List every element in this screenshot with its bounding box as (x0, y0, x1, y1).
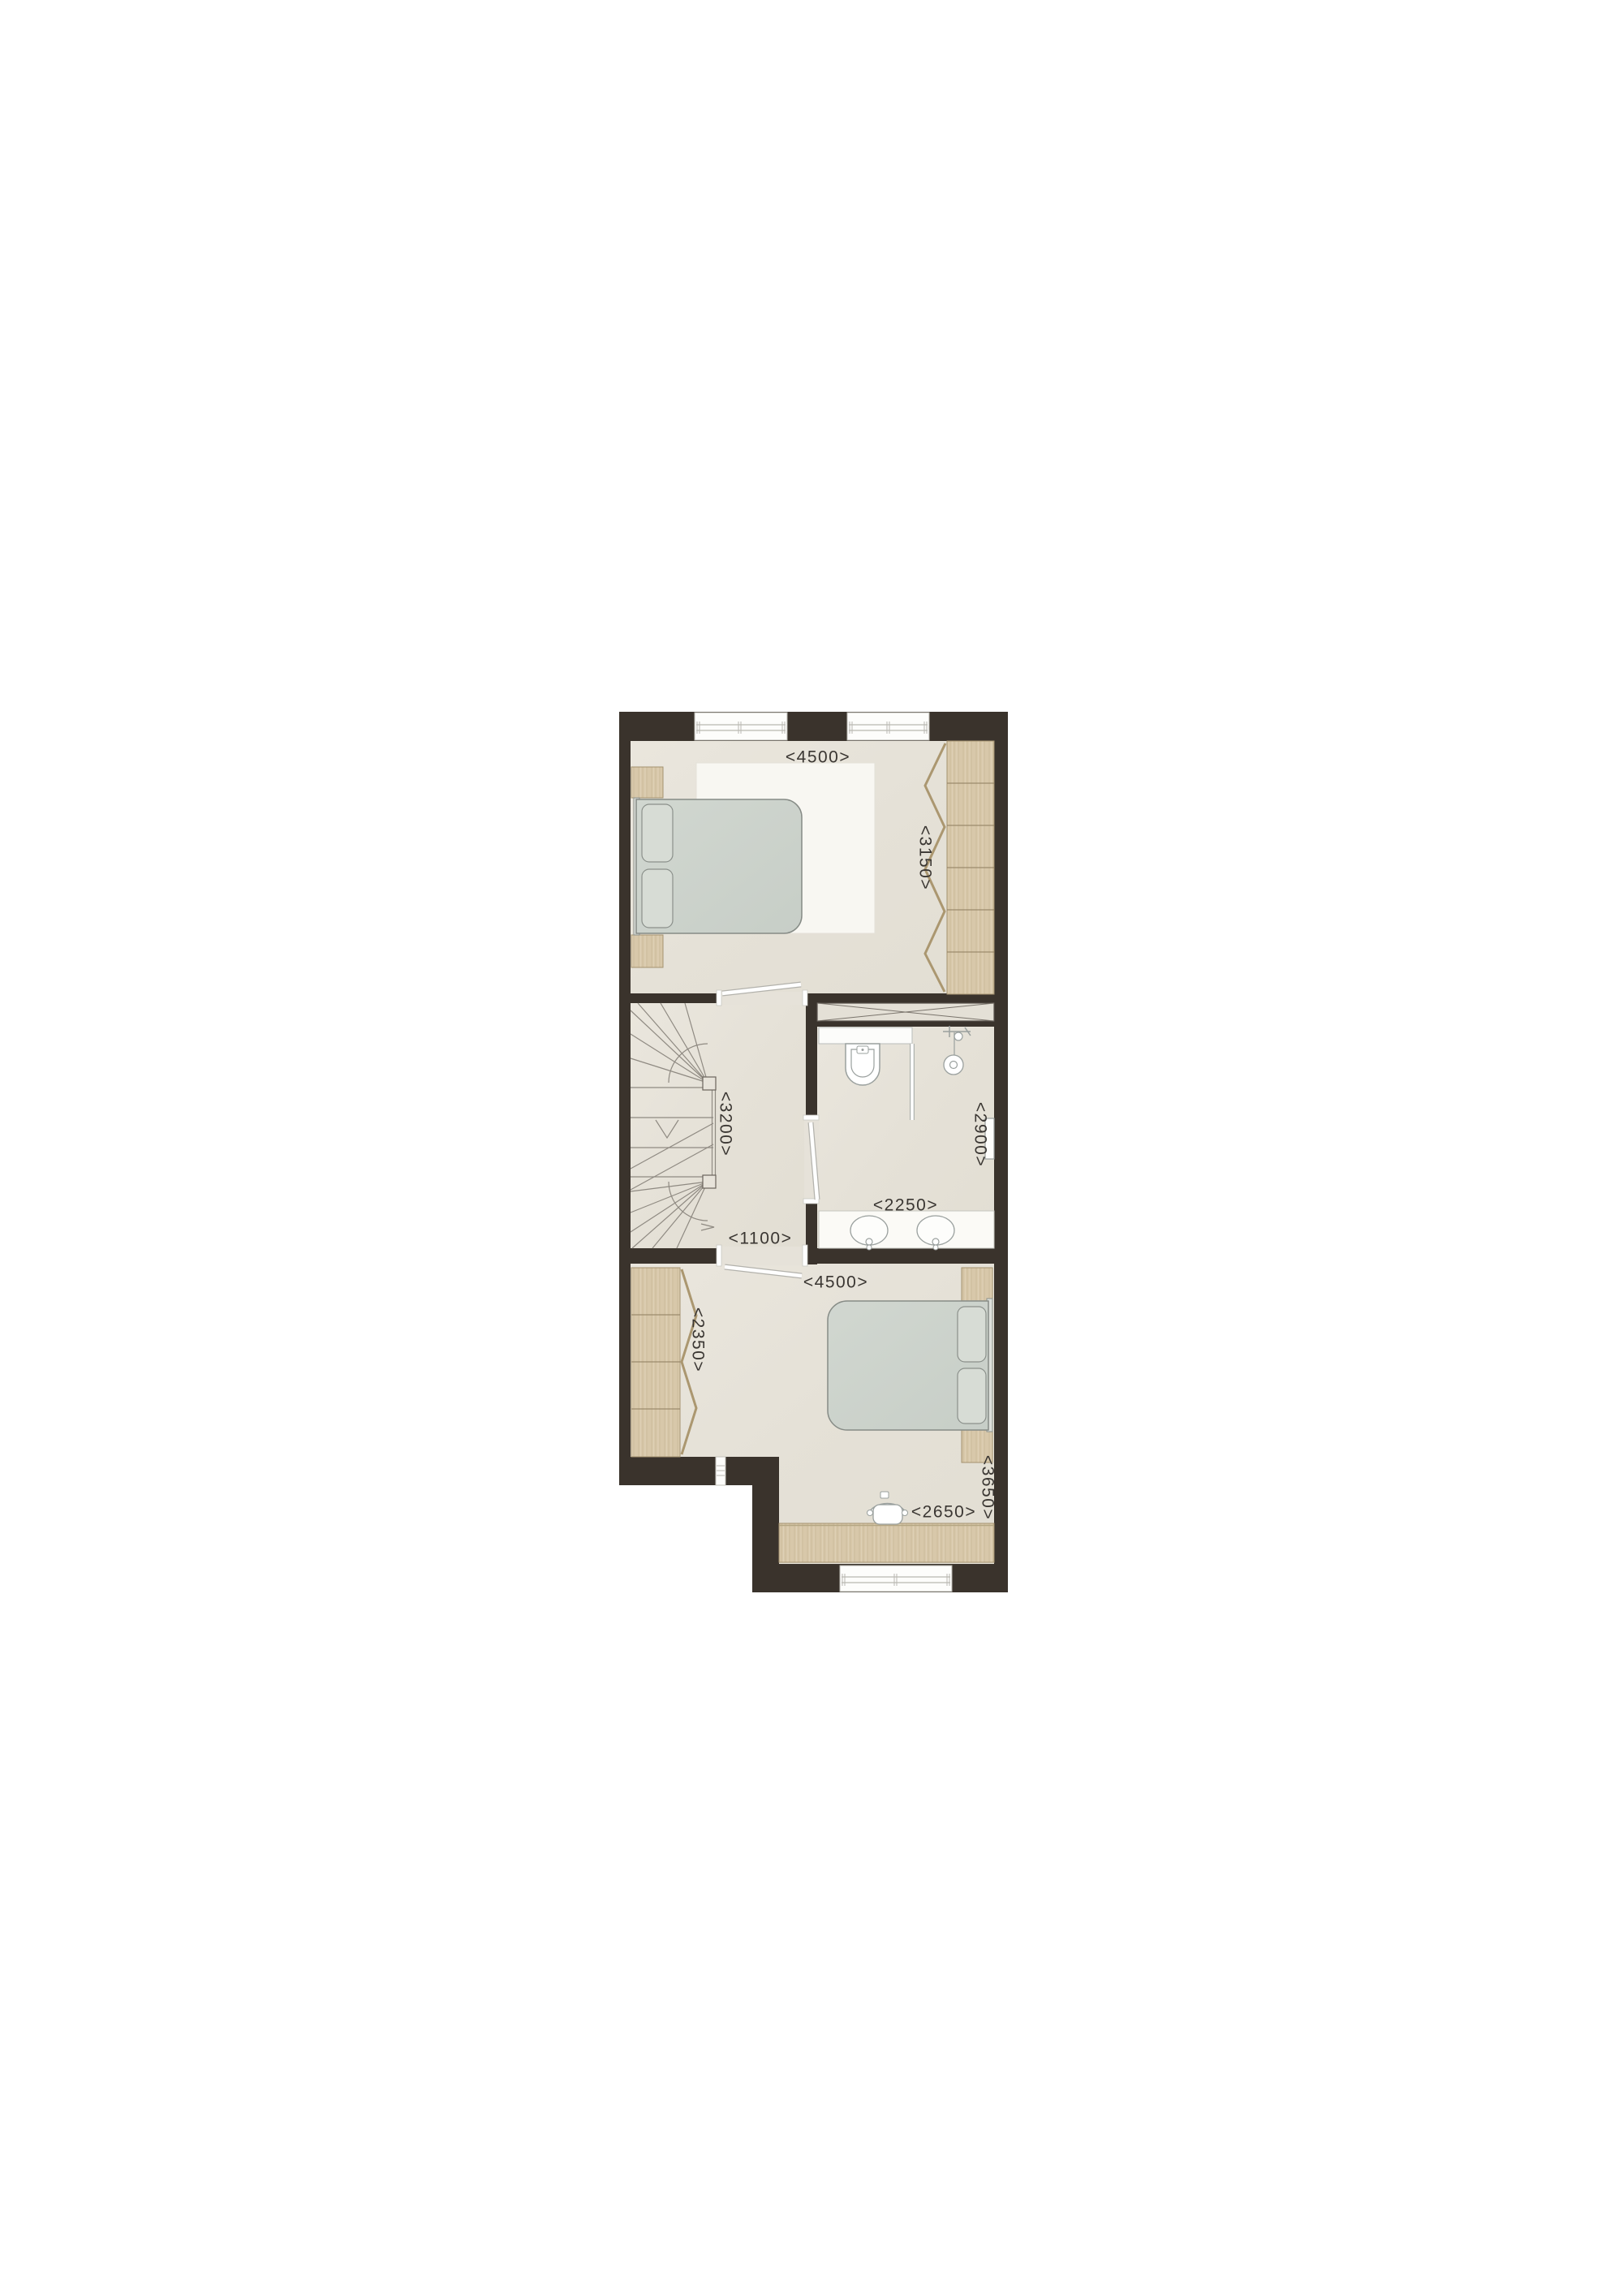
faucet-base (867, 1245, 872, 1250)
window-slot-jog-wall (716, 1457, 725, 1485)
nightstand (631, 935, 663, 967)
toilet (846, 1044, 880, 1085)
faucet (932, 1238, 939, 1245)
pillow (958, 1307, 986, 1362)
nightstand (631, 767, 663, 798)
pillow (642, 804, 673, 862)
dim-bathroom-width: <2250> (873, 1196, 938, 1215)
dim-bathroom-depth: <2900> (971, 1102, 989, 1167)
faucet (866, 1238, 872, 1245)
dim-lower-bedroom-width: <4500> (803, 1273, 868, 1292)
pillow (958, 1368, 986, 1424)
wall-left (619, 712, 631, 1485)
dim-landing-width: <1100> (729, 1230, 793, 1248)
dim-lower-wardrobe-length: <2350> (688, 1307, 707, 1372)
desk (779, 1523, 994, 1562)
window-top-right (847, 713, 929, 740)
window-bottom (840, 1566, 952, 1592)
dim-stairwell-depth: <3200> (716, 1092, 734, 1157)
nightstand (962, 1268, 992, 1301)
shaft-niche (817, 1003, 994, 1021)
window-top-left (695, 713, 787, 740)
dim-lower-bedroom-depth: <3650> (978, 1455, 997, 1520)
cistern-shelf (819, 1027, 912, 1044)
dim-upper-bedroom-width: <4500> (786, 748, 850, 767)
floorplan-page: <4500> <3150> <3200> <1100> <2250> <2900… (0, 0, 1623, 2296)
wall-top (619, 712, 1008, 741)
wall-below-shaft (817, 1021, 994, 1027)
vanity-double-sink (819, 1211, 994, 1250)
dim-upper-bedroom-depth: <3150> (915, 825, 934, 890)
faucet-base (933, 1245, 938, 1250)
dim-desk-length: <2650> (911, 1503, 976, 1522)
floorplan-drawing: <4500> <3150> <3200> <1100> <2250> <2900… (0, 0, 1623, 2296)
pillow (642, 869, 673, 928)
door-opening-lower-bedroom (721, 1247, 803, 1265)
wall-jog-horizontal (619, 1457, 779, 1485)
desk-lamp (880, 1492, 889, 1498)
